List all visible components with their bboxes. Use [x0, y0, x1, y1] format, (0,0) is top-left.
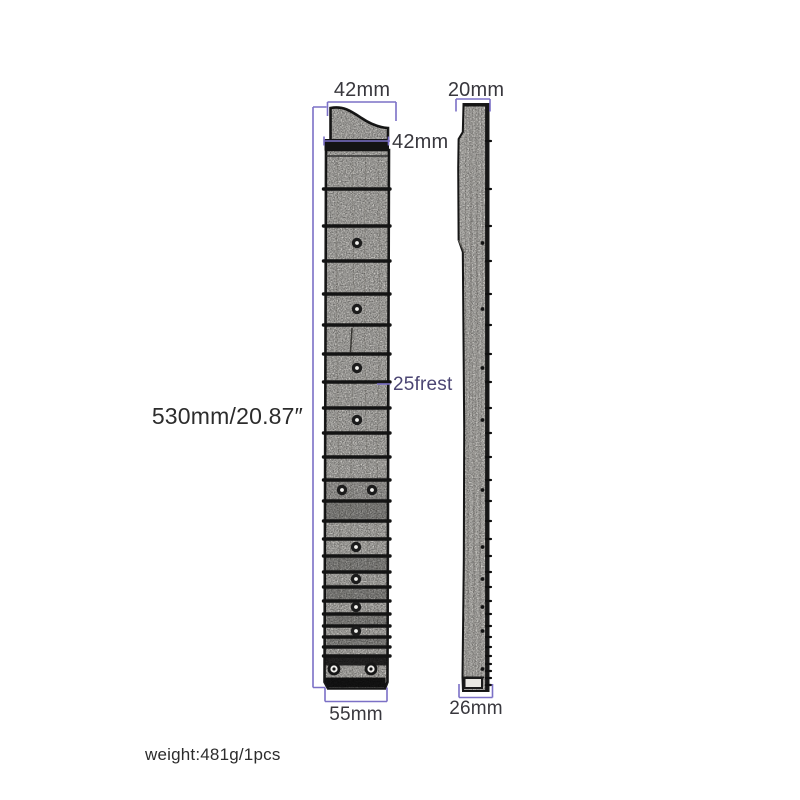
dimension-label-side-thickness: 20mm [448, 80, 504, 100]
product-diagram: 42mm 20mm 42mm 530mm/20.87″ 25frest 55mm… [0, 0, 800, 800]
dimension-label-side-heel: 26mm [449, 699, 503, 718]
dimension-label-top-width: 42mm [334, 80, 390, 100]
dimension-label-nut-width: 42mm [392, 132, 448, 152]
side-view [450, 95, 500, 700]
dimension-label-fret-count: 25frest [393, 375, 453, 394]
dimension-label-length: 530mm/20.87″ [152, 405, 303, 428]
side-heel-step [465, 678, 483, 688]
dimension-label-heel-width: 55mm [329, 705, 383, 724]
weight-label: weight:481g/1pcs [145, 746, 281, 763]
front-view [315, 95, 405, 695]
guitar-neck-artwork [0, 0, 800, 800]
